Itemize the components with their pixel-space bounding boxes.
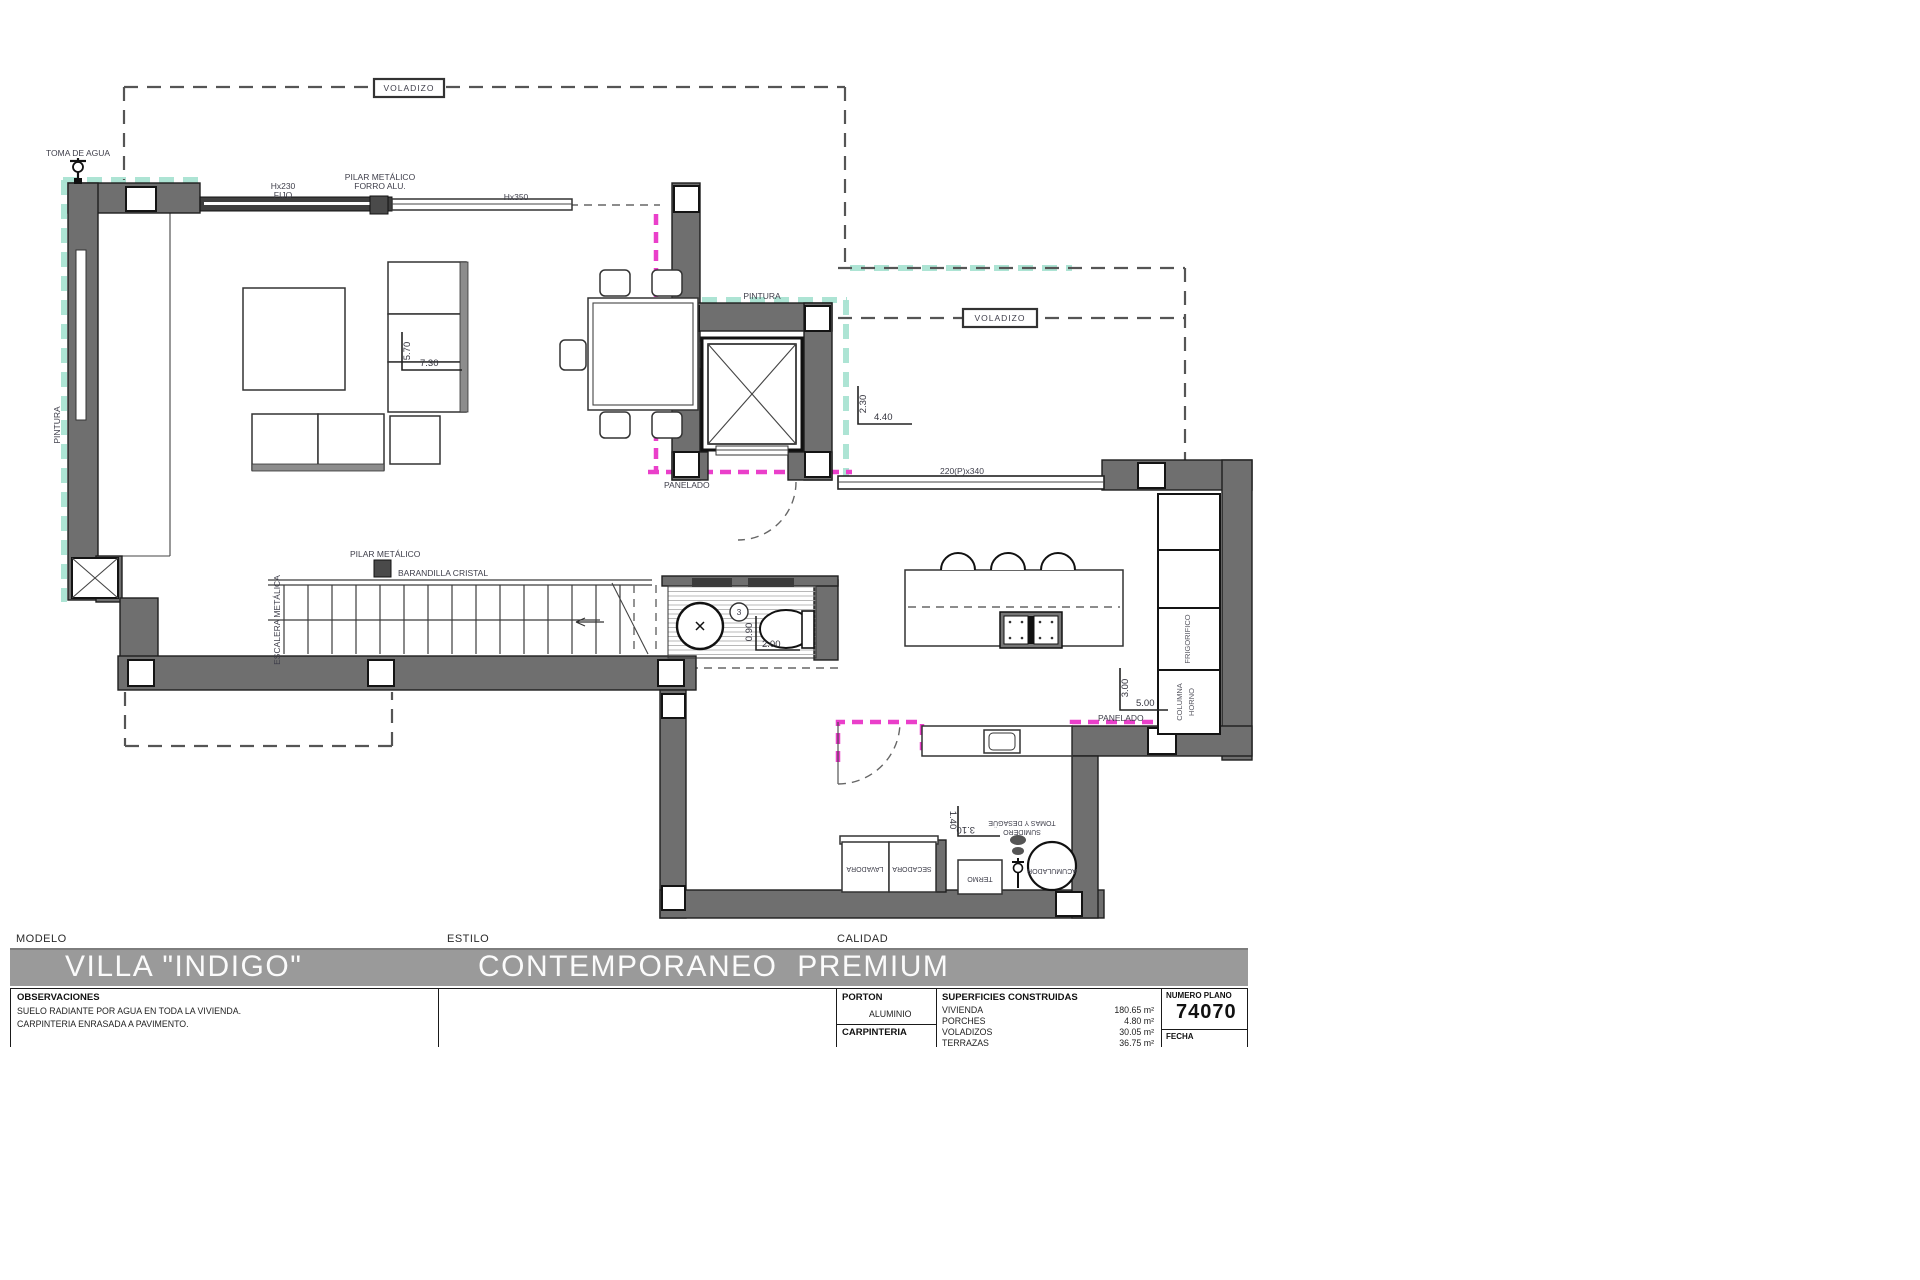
superficies-header: SUPERFICIES CONSTRUIDAS bbox=[942, 992, 1078, 1003]
surface-row-value: 36.75 m² bbox=[1119, 1038, 1154, 1047]
dim-laundry-h: 3.10 bbox=[957, 824, 976, 835]
steel-pillar-stairs bbox=[374, 560, 391, 577]
calidad-label: CALIDAD bbox=[837, 933, 888, 945]
model-name: VILLA "INDIGO" bbox=[65, 950, 302, 984]
stair-direction-arrow bbox=[576, 618, 604, 626]
tomas-desague-label: TOMAS Y DESAGÜE bbox=[988, 819, 1056, 827]
pilar-metalico-label: PILAR METÁLICO bbox=[350, 549, 421, 559]
superficies-cell: SUPERFICIES CONSTRUIDAS VIVIENDA 180.65 … bbox=[936, 989, 1162, 1047]
floorplan-drawing: 3 bbox=[0, 0, 1920, 1280]
stool bbox=[941, 553, 975, 570]
escalera-label: ESCALERA METÁLICA bbox=[272, 575, 282, 665]
door-swing-arc bbox=[738, 482, 796, 540]
surface-row-name: TERRAZAS bbox=[942, 1038, 989, 1047]
window-dimension-label: 220(P)x340 bbox=[940, 466, 984, 476]
chair bbox=[652, 270, 682, 296]
voladizo-label-right: VOLADIZO bbox=[975, 313, 1026, 323]
dim-kitchen-v: 3.00 bbox=[1120, 679, 1131, 698]
dim-bath-v: 0.90 bbox=[744, 623, 755, 642]
chair bbox=[652, 412, 682, 438]
forro-alu-label: FORRO ALU. bbox=[354, 181, 405, 191]
empty-cell bbox=[438, 989, 837, 1047]
porton-value: ALUMINIO bbox=[869, 1009, 912, 1019]
sofa-module bbox=[388, 262, 466, 314]
sofa-module bbox=[318, 414, 384, 470]
panelado-label-elevator: PANELADO bbox=[664, 480, 710, 490]
toma-de-agua-label: TOMA DE AGUA bbox=[46, 148, 110, 158]
cabinet bbox=[1158, 494, 1220, 550]
porton-cell: PORTON ALUMINIO CARPINTERIA bbox=[836, 989, 937, 1047]
numero-plano-value: 74070 bbox=[1176, 1001, 1237, 1024]
chair bbox=[600, 270, 630, 296]
barandilla-label: BARANDILLA CRISTAL bbox=[398, 568, 488, 578]
elevator bbox=[702, 338, 802, 540]
fecha-header: FECHA bbox=[1166, 1032, 1194, 1041]
dim-kitchen-h: 5.00 bbox=[1136, 698, 1155, 709]
steel-pillar-top bbox=[370, 196, 388, 214]
hx350-label: Hx350 bbox=[504, 192, 529, 202]
fijo-label: FIJO bbox=[274, 190, 293, 200]
title-bar: VILLA "INDIGO" CONTEMPORANEO PREMIUM bbox=[10, 948, 1248, 986]
bathroom: 3 bbox=[668, 578, 816, 658]
chair bbox=[600, 412, 630, 438]
sofa-module bbox=[388, 314, 466, 362]
floorplan-sheet: 3 bbox=[0, 0, 1920, 1280]
numero-plano-cell: NUMERO PLANO 74070 FECHA bbox=[1161, 989, 1248, 1047]
acumulador-label: ACUMULADOR bbox=[1027, 867, 1077, 874]
surface-row-value: 30.05 m² bbox=[1119, 1027, 1154, 1037]
surface-row-value: 180.65 m² bbox=[1114, 1005, 1154, 1015]
termo-label: TERMO bbox=[967, 875, 993, 882]
dim-bath-h: 2.00 bbox=[762, 639, 781, 650]
sofa-module bbox=[252, 414, 318, 470]
estilo-label: ESTILO bbox=[447, 933, 489, 945]
columna-label: COLUMNA bbox=[1175, 683, 1184, 721]
dim-laundry-v: 1.40 bbox=[947, 811, 958, 830]
door-swing-arc bbox=[838, 722, 900, 784]
frigorifico-label: FRIGORIFICO bbox=[1183, 614, 1192, 663]
cabinet bbox=[1158, 550, 1220, 608]
pintura-label-tower: PINTURA bbox=[743, 291, 781, 301]
numero-plano-header: NUMERO PLANO bbox=[1166, 991, 1232, 1000]
panelado-label-kitchen: PANELADO bbox=[1098, 713, 1144, 723]
dim-living-v: 5.70 bbox=[402, 342, 413, 361]
chair bbox=[560, 340, 586, 370]
drain bbox=[1010, 835, 1026, 845]
bath-number: 3 bbox=[737, 607, 742, 617]
sumidero-label: SUMIDERO bbox=[1003, 828, 1041, 835]
dim-elevator-v: 2.30 bbox=[858, 395, 869, 414]
pintura-label-left: PINTURA bbox=[52, 406, 62, 444]
kitchen bbox=[905, 494, 1220, 756]
observaciones-header: OBSERVACIONES bbox=[17, 992, 100, 1003]
surface-row-name: PORCHES bbox=[942, 1016, 986, 1026]
pintura-teal-highlight bbox=[63, 180, 1072, 602]
surface-row-value: 4.80 m² bbox=[1124, 1016, 1154, 1026]
style-quality: CONTEMPORANEO PREMIUM bbox=[478, 950, 949, 984]
stool bbox=[991, 553, 1025, 570]
lavadora-label: LAVADORA bbox=[846, 865, 883, 872]
dim-elevator-h: 4.40 bbox=[874, 412, 893, 423]
observaciones-cell: OBSERVACIONES SUELO RADIANTE POR AGUA EN… bbox=[11, 989, 438, 1047]
secadora-label: SECADORA bbox=[892, 865, 932, 872]
porton-header: PORTON bbox=[842, 992, 882, 1003]
dining-table bbox=[588, 298, 698, 410]
stool bbox=[1041, 553, 1075, 570]
modelo-label: MODELO bbox=[16, 933, 67, 945]
voladizo-label-top: VOLADIZO bbox=[384, 83, 435, 93]
observacion-1: SUELO RADIANTE POR AGUA EN TODA LA VIVIE… bbox=[17, 1006, 241, 1016]
surface-row-name: VIVIENDA bbox=[942, 1005, 983, 1015]
dim-living-h: 7.30 bbox=[420, 358, 439, 369]
title-table: OBSERVACIONES SUELO RADIANTE POR AGUA EN… bbox=[10, 988, 1248, 1047]
water-tap-icon bbox=[1012, 858, 1024, 888]
side-table bbox=[390, 416, 440, 464]
observacion-2: CARPINTERIA ENRASADA A PAVIMENTO. bbox=[17, 1019, 189, 1029]
accumulator-tank bbox=[1028, 842, 1076, 890]
horno-label: HORNO bbox=[1187, 688, 1196, 716]
carpinteria-header: CARPINTERIA bbox=[842, 1027, 907, 1038]
rug bbox=[243, 288, 345, 390]
surface-row-name: VOLADIZOS bbox=[942, 1027, 992, 1037]
